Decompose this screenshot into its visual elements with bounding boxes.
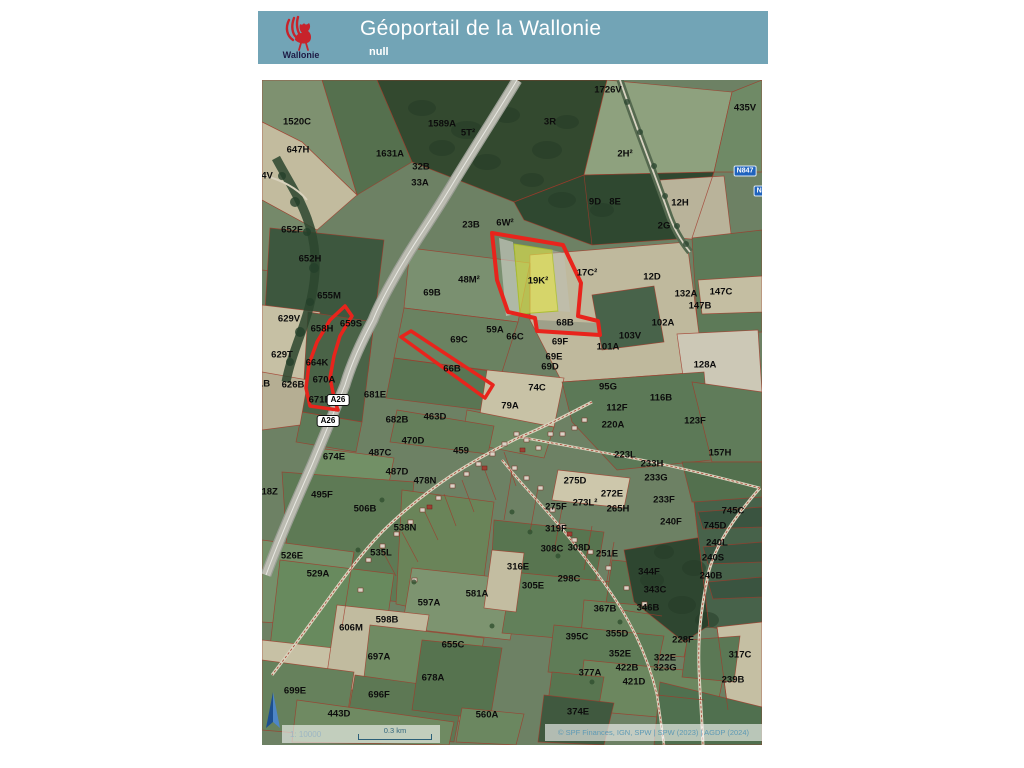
rooster-icon [279, 14, 323, 52]
road-shield: A26 [317, 415, 340, 427]
scale-indicator: 1: 10000 0.3 km [282, 725, 440, 743]
page-subtitle: null [369, 46, 389, 58]
scale-ratio: 1: 10000 [290, 730, 321, 739]
road-shield: A26 [327, 394, 350, 406]
page-title: Géoportail de la Wallonie [360, 17, 601, 41]
road-shield: N847 [734, 166, 757, 177]
scale-bar [358, 734, 432, 740]
road-shield: N84 [754, 186, 762, 197]
logo-label: Wallonie [272, 50, 330, 60]
map-viewport[interactable]: 1520C647H4V1589A5T²1631A32B33A1726V3R435… [262, 80, 762, 745]
road-shields-layer: A26A26N847N84 [262, 80, 762, 745]
north-arrow-icon [264, 690, 282, 732]
wallonie-logo: Wallonie [272, 14, 330, 62]
header-bar: Wallonie Géoportail de la Wallonie null [258, 11, 768, 64]
map-attribution: © SPF Finances, IGN, SPW | SPW (2023) | … [545, 724, 762, 741]
